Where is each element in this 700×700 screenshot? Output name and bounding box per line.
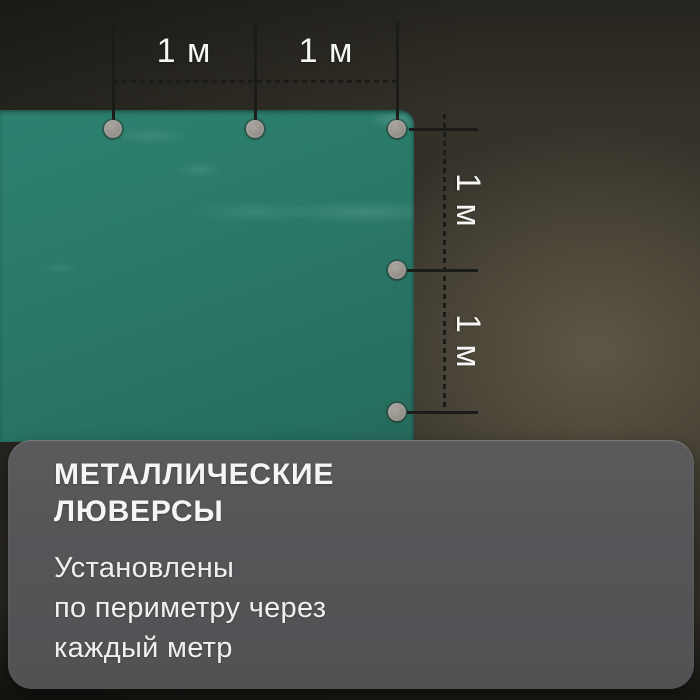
card-title-line-2: ЛЮВЕРСЫ (54, 493, 334, 530)
tarpaulin (0, 110, 414, 442)
grommet (388, 403, 406, 421)
dimension-tick-top-1 (112, 22, 115, 120)
measurement-label-right-2: 1 м (448, 295, 488, 387)
measurement-label-top-2: 1 м (276, 34, 376, 68)
card-description-line-2: по периметру через (54, 588, 326, 628)
grommet (388, 261, 406, 279)
card-description: Установлены по периметру через каждый ме… (54, 548, 326, 668)
card-title-line-1: МЕТАЛЛИЧЕСКИЕ (54, 456, 334, 493)
dimension-tick-top-2 (254, 22, 257, 120)
measurement-label-right-1: 1 м (448, 154, 488, 246)
card-title: МЕТАЛЛИЧЕСКИЕ ЛЮВЕРСЫ (54, 456, 334, 530)
dimension-tick-top-3 (396, 22, 399, 120)
card-description-line-1: Установлены (54, 548, 326, 588)
dimension-dashed-line-top (113, 80, 397, 83)
grommet (104, 120, 122, 138)
product-infographic: 1 м 1 м 1 м 1 м МЕТАЛЛИЧЕСКИЕ ЛЮВЕРСЫ Ус… (0, 0, 700, 700)
card-description-line-3: каждый метр (54, 628, 326, 668)
grommet (246, 120, 264, 138)
dimension-dashed-line-right (443, 114, 446, 412)
measurement-label-top-1: 1 м (134, 34, 234, 68)
grommet (388, 120, 406, 138)
